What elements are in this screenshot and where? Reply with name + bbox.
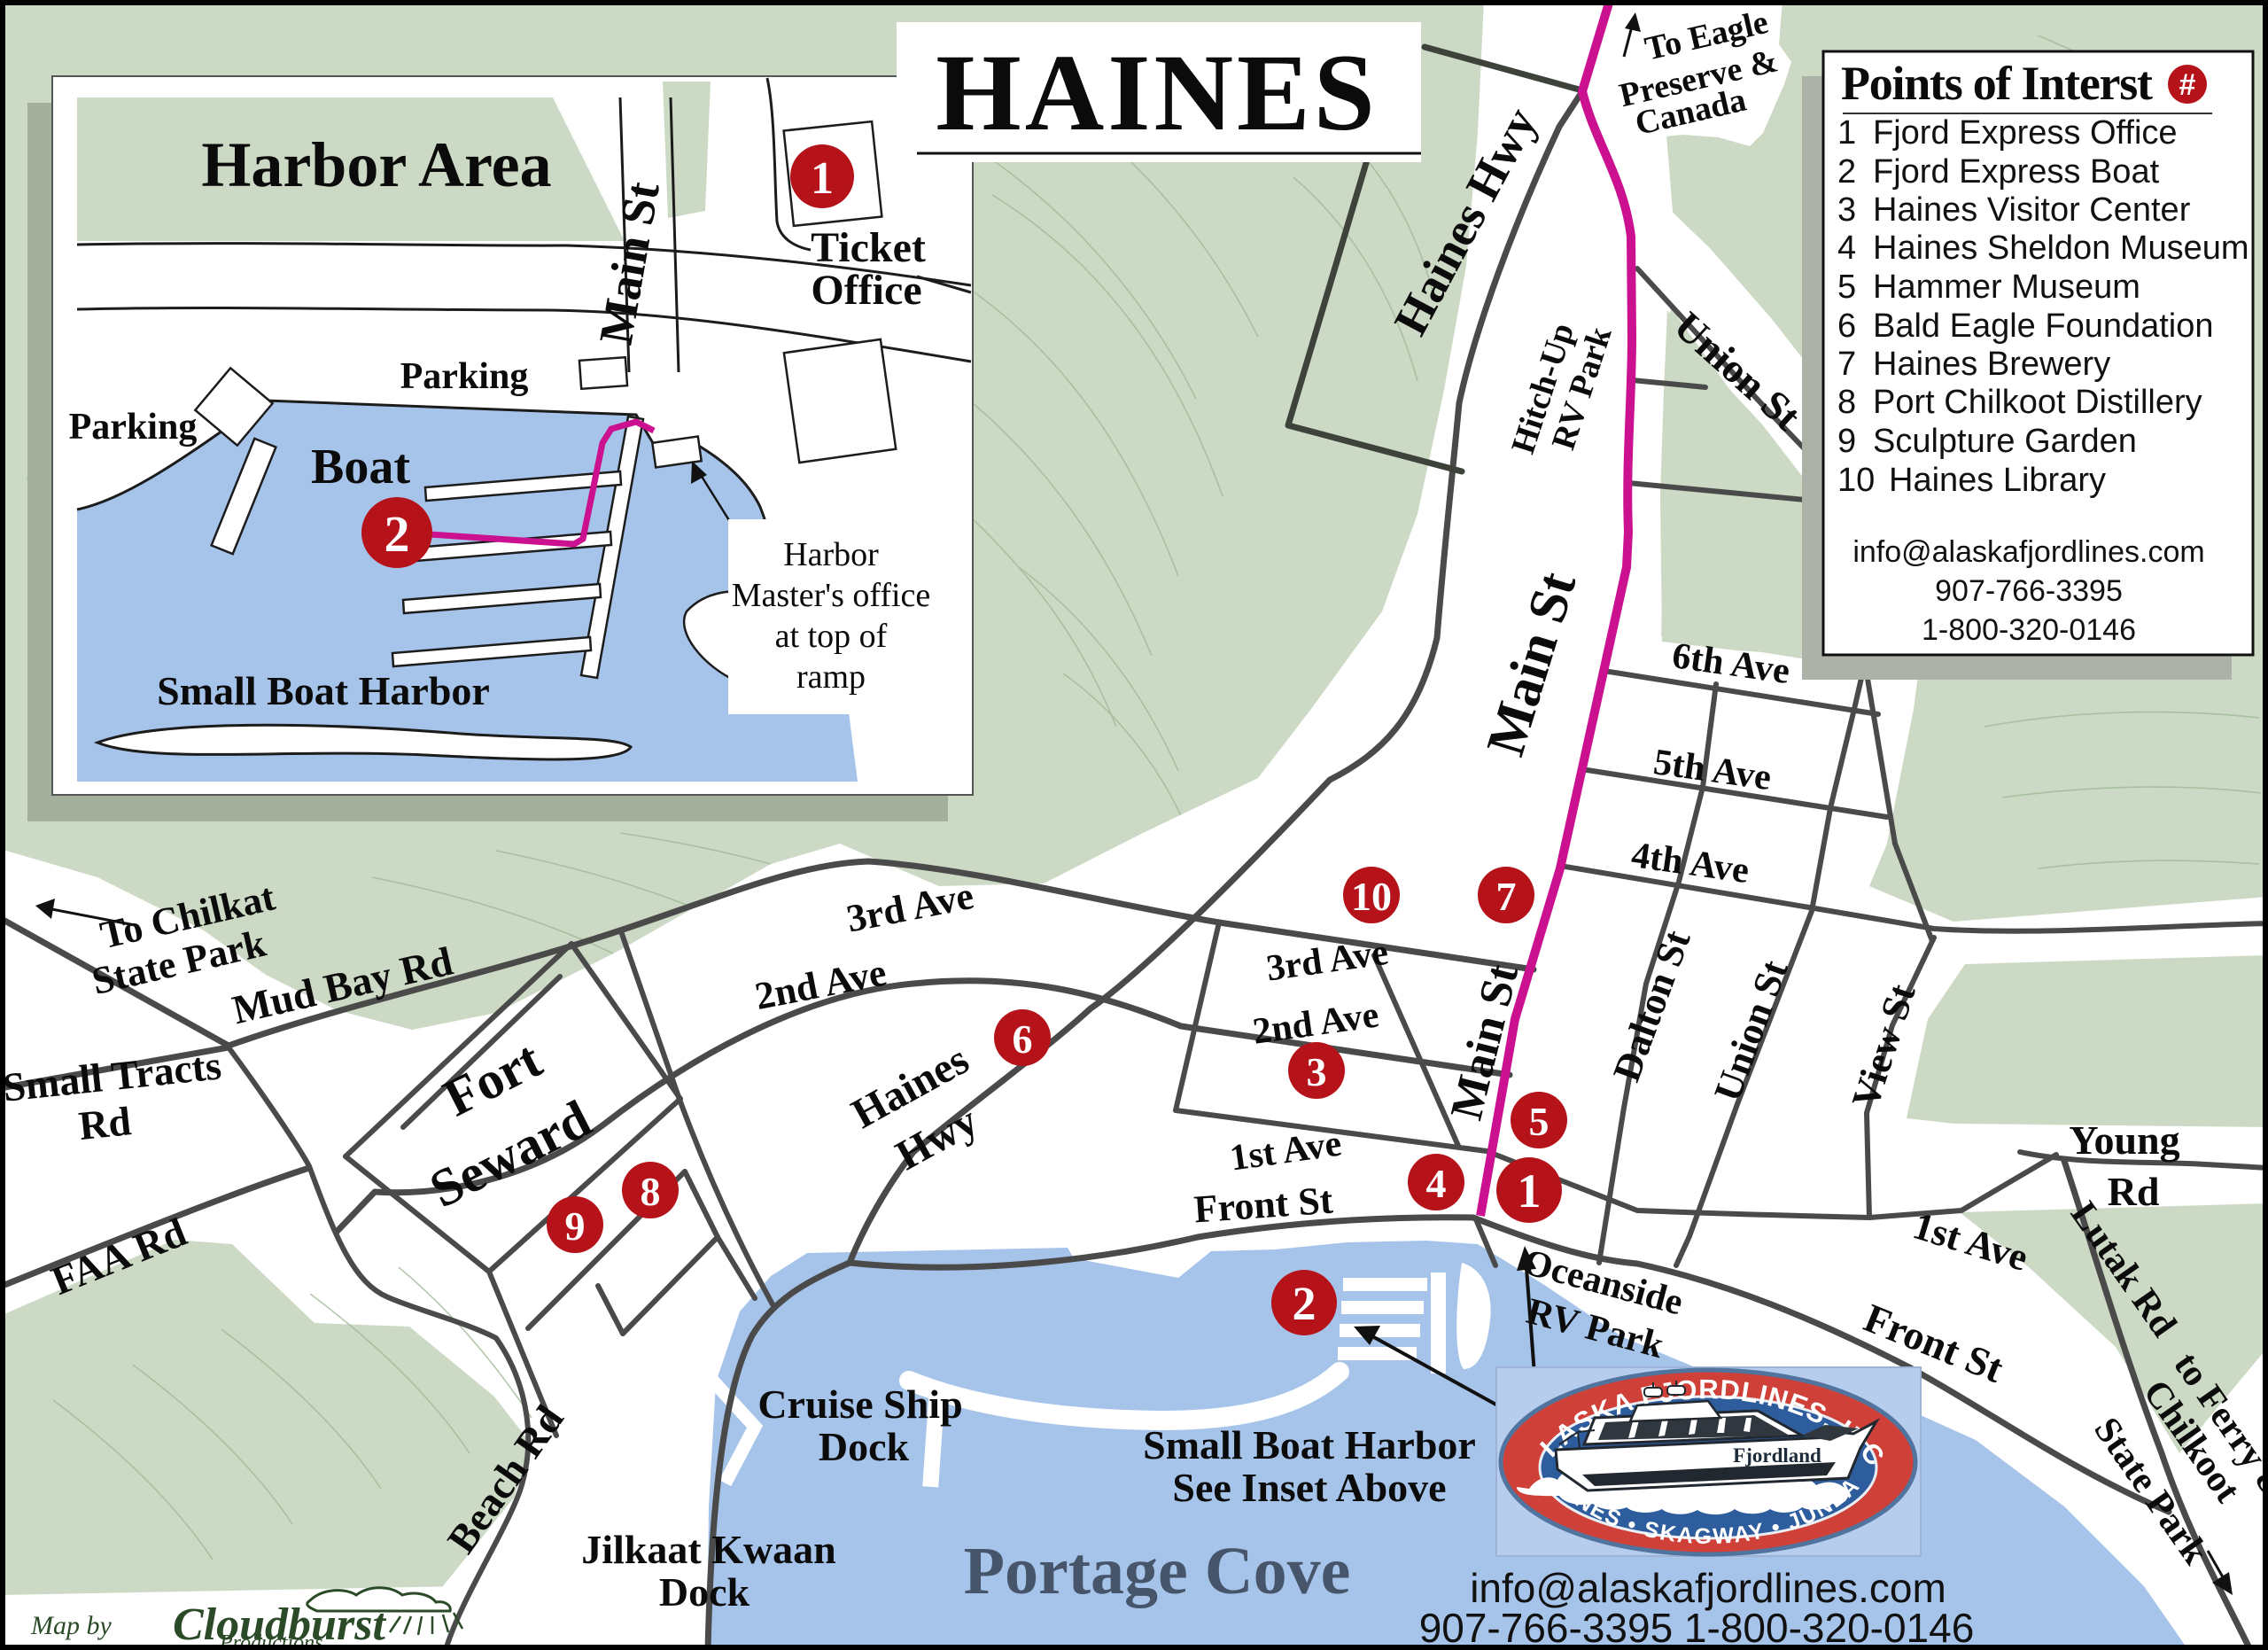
svg-text:Rd: Rd [2108,1169,2160,1214]
svg-text:Haines Visitor Center: Haines Visitor Center [1873,191,2191,229]
svg-text:Fjord Express Boat: Fjord Express Boat [1873,153,2160,191]
svg-text:Dock: Dock [659,1569,750,1615]
svg-text:Rd: Rd [76,1098,133,1148]
svg-text:Cruise Ship: Cruise Ship [757,1381,962,1427]
svg-text:Office: Office [811,267,921,314]
svg-text:Master's office: Master's office [732,577,931,614]
svg-text:Dock: Dock [819,1424,910,1469]
svg-text:1: 1 [1837,114,1856,152]
svg-text:7: 7 [1837,346,1856,383]
svg-text:3: 3 [1307,1049,1327,1094]
svg-text:HAINES: HAINES [936,32,1378,153]
svg-text:9: 9 [565,1203,586,1249]
svg-text:Fjord Express Office: Fjord Express Office [1873,114,2178,152]
svg-text:Fjordland: Fjordland [1733,1444,1821,1467]
svg-text:907-766-3395 1-800-320-0146: 907-766-3395 1-800-320-0146 [1419,1605,1975,1650]
svg-text:Map by: Map by [30,1611,112,1640]
svg-text:1: 1 [1518,1164,1542,1218]
svg-text:2: 2 [1293,1277,1317,1330]
svg-text:ramp: ramp [796,658,866,696]
svg-text:8: 8 [641,1169,661,1214]
svg-text:Harbor: Harbor [783,536,879,573]
svg-text:3: 3 [1837,191,1856,229]
svg-text:Points of Interst: Points of Interst [1841,57,2153,110]
svg-text:info@alaskafjordlines.com: info@alaskafjordlines.com [1852,535,2204,569]
svg-text:6: 6 [1013,1016,1033,1062]
svg-text:4: 4 [1426,1161,1447,1206]
svg-text:10: 10 [1351,874,1392,919]
svg-text:4: 4 [1837,230,1856,267]
svg-text:Jilkaat Kwaan: Jilkaat Kwaan [581,1527,836,1572]
svg-text:Haines Library: Haines Library [1889,462,2106,499]
svg-text:Small Boat Harbor: Small Boat Harbor [1143,1422,1476,1467]
svg-text:Haines Brewery: Haines Brewery [1873,346,2110,383]
svg-text:Parking: Parking [69,407,198,448]
svg-text:5: 5 [1529,1099,1550,1144]
svg-text:Parking: Parking [400,356,529,397]
svg-text:1-800-320-0146: 1-800-320-0146 [1922,613,2136,647]
svg-text:Hammer Museum: Hammer Museum [1873,269,2140,306]
svg-text:5: 5 [1837,269,1856,306]
svg-text:Small Boat Harbor: Small Boat Harbor [157,668,490,713]
svg-text:Portage Cove: Portage Cove [964,1534,1351,1608]
svg-text:2: 2 [384,505,410,563]
svg-text:See Inset Above: See Inset Above [1172,1465,1446,1510]
svg-text:6: 6 [1837,307,1856,345]
svg-text:Bald Eagle Foundation: Bald Eagle Foundation [1873,307,2214,345]
svg-text:Haines Sheldon Museum: Haines Sheldon Museum [1873,230,2249,267]
svg-text:10: 10 [1837,462,1875,499]
svg-text:907-766-3395: 907-766-3395 [1935,574,2123,608]
svg-text:8: 8 [1837,384,1856,421]
svg-text:7: 7 [1496,874,1517,919]
svg-text:at top of: at top of [775,618,888,655]
svg-text:#: # [2179,68,2196,102]
svg-text:2: 2 [1837,153,1856,191]
svg-text:Port Chilkoot Distillery: Port Chilkoot Distillery [1873,384,2202,421]
svg-text:Boat: Boat [311,440,410,494]
svg-text:Harbor Area: Harbor Area [201,129,551,200]
svg-text:Sculpture Garden: Sculpture Garden [1873,423,2137,460]
svg-text:Young: Young [2069,1117,2179,1163]
svg-text:1: 1 [811,153,834,204]
svg-text:9: 9 [1837,423,1856,460]
svg-text:Ticket: Ticket [811,224,926,271]
